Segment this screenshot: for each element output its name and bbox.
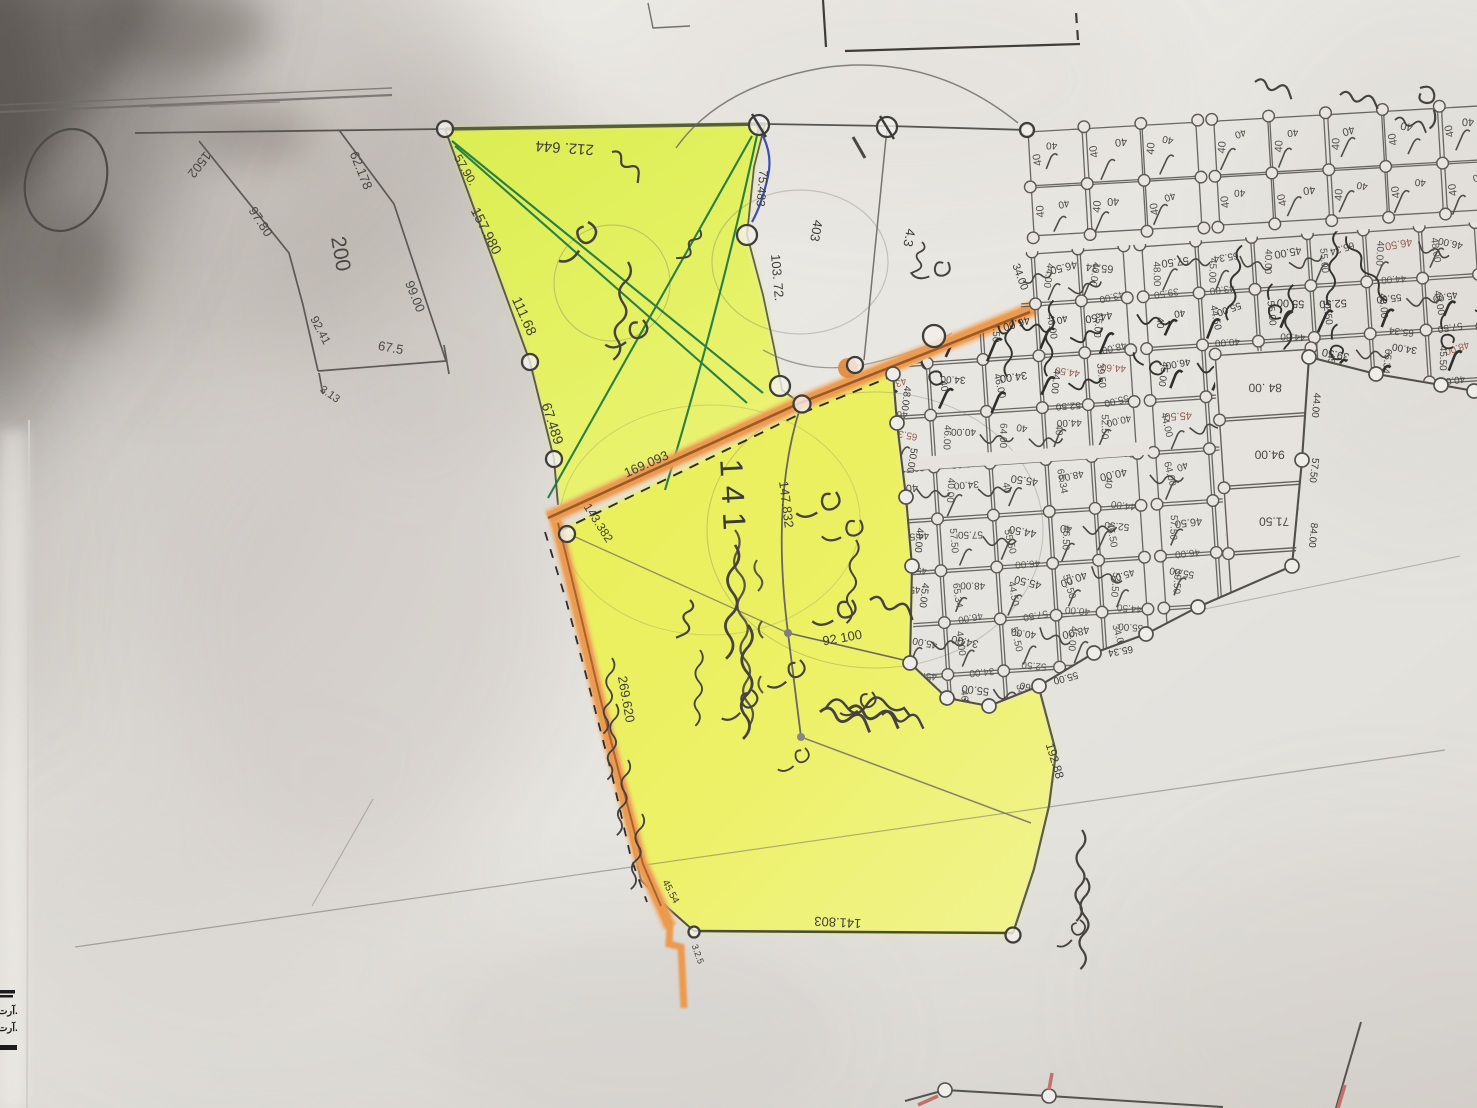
- svg-text:40: 40: [1286, 126, 1299, 138]
- svg-text:40: 40: [1102, 477, 1114, 490]
- svg-text:57.50: 57.50: [1108, 572, 1121, 598]
- svg-text:40: 40: [1446, 183, 1460, 197]
- svg-text:40: 40: [1087, 144, 1101, 158]
- svg-text:44.60: 44.60: [1280, 330, 1306, 342]
- svg-text:40: 40: [1107, 195, 1120, 207]
- svg-text:57.50: 57.50: [1167, 515, 1179, 541]
- svg-text:48.00: 48.00: [960, 579, 986, 591]
- svg-text:94.00: 94.00: [1254, 448, 1284, 462]
- svg-text:40: 40: [1046, 139, 1058, 150]
- svg-text:40: 40: [1333, 188, 1346, 201]
- svg-text:141.803: 141.803: [814, 914, 862, 931]
- svg-text:52.50: 52.50: [1055, 399, 1081, 412]
- svg-text:84.00: 84.00: [1306, 522, 1319, 548]
- svg-text:40: 40: [1234, 187, 1246, 198]
- svg-text:40: 40: [1034, 205, 1047, 218]
- svg-text:40: 40: [1145, 142, 1158, 155]
- svg-text:40: 40: [1330, 138, 1342, 150]
- svg-text:40: 40: [1443, 124, 1457, 139]
- svg-text:40.00: 40.00: [1214, 335, 1240, 348]
- svg-text:44.50: 44.50: [1116, 601, 1142, 614]
- svg-text:40.00: 40.00: [1262, 249, 1274, 275]
- svg-text:40: 40: [1148, 202, 1162, 216]
- svg-text:44.00: 44.00: [1309, 392, 1322, 418]
- svg-text:40: 40: [1216, 141, 1229, 154]
- svg-text:1 4 1: 1 4 1: [713, 458, 753, 531]
- svg-text:40: 40: [1091, 200, 1104, 213]
- svg-text:48.00: 48.00: [1151, 261, 1162, 287]
- svg-text:40: 40: [1173, 307, 1186, 319]
- svg-text:40: 40: [1031, 153, 1045, 167]
- svg-text:46.00: 46.00: [1014, 557, 1040, 570]
- svg-text:40: 40: [1015, 421, 1028, 434]
- svg-text:84 .00: 84 .00: [1248, 381, 1282, 395]
- svg-text:40: 40: [1462, 115, 1475, 127]
- svg-text:55.00: 55.00: [1091, 312, 1104, 338]
- svg-text:40: 40: [1219, 195, 1233, 209]
- svg-text:40: 40: [1273, 140, 1285, 153]
- svg-text:71.50: 71.50: [1259, 514, 1289, 528]
- svg-text:40: 40: [1114, 135, 1127, 148]
- svg-text:45.00: 45.00: [1206, 258, 1218, 284]
- svg-text:46.50: 46.50: [1059, 525, 1071, 551]
- svg-text:40.00: 40.00: [951, 426, 977, 437]
- svg-text:40: 40: [1414, 176, 1426, 188]
- svg-text:آرت.: آرت.: [0, 1021, 18, 1034]
- svg-text:57.50: 57.50: [957, 529, 983, 540]
- svg-text:45.00: 45.00: [1066, 626, 1079, 652]
- svg-text:40: 40: [1355, 179, 1368, 192]
- svg-text:40: 40: [1386, 132, 1400, 146]
- svg-text:45.50: 45.50: [1437, 346, 1448, 372]
- svg-text:44.00: 44.00: [1380, 272, 1406, 285]
- svg-text:57.50: 57.50: [947, 528, 960, 554]
- svg-text:40: 40: [1302, 183, 1316, 196]
- svg-text:48.00: 48.00: [912, 527, 925, 553]
- svg-text:46.00: 46.00: [940, 425, 952, 451]
- svg-text:4.3: 4.3: [900, 228, 918, 248]
- svg-text:آرت.: آرت.: [0, 1004, 18, 1017]
- svg-text:52.50: 52.50: [1099, 414, 1110, 440]
